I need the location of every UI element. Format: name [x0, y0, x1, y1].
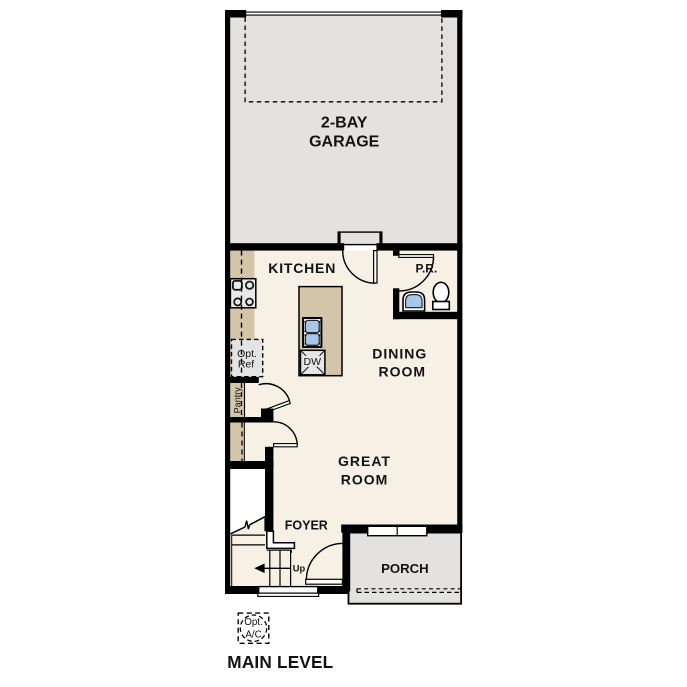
svg-text:Up: Up — [293, 564, 306, 574]
svg-text:A/C: A/C — [245, 630, 261, 641]
svg-text:2-BAY: 2-BAY — [321, 114, 368, 131]
svg-text:MAIN LEVEL: MAIN LEVEL — [227, 652, 333, 672]
svg-text:Opt.: Opt. — [244, 617, 263, 628]
svg-text:DINING: DINING — [372, 345, 427, 361]
svg-text:GREAT: GREAT — [338, 453, 391, 469]
svg-text:ROOM: ROOM — [341, 472, 389, 488]
svg-text:Pantry: Pantry — [233, 387, 243, 414]
svg-text:KITCHEN: KITCHEN — [268, 260, 336, 276]
svg-text:Ref: Ref — [238, 359, 254, 371]
svg-text:DW: DW — [304, 356, 322, 368]
svg-text:P.R.: P.R. — [416, 261, 438, 275]
svg-text:ROOM: ROOM — [379, 363, 427, 379]
svg-text:GARAGE: GARAGE — [309, 133, 380, 150]
svg-text:FOYER: FOYER — [285, 518, 328, 532]
svg-text:PORCH: PORCH — [381, 561, 429, 576]
